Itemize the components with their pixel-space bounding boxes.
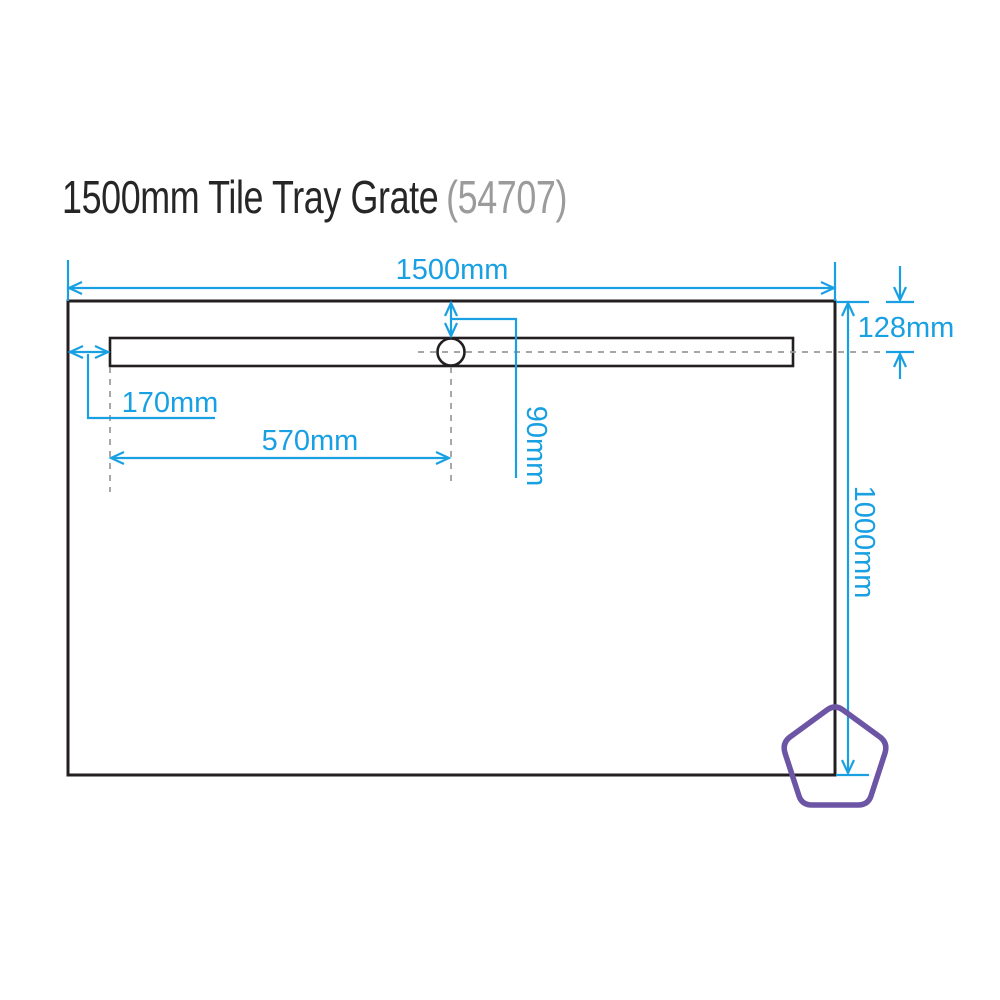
dim-grate-centre-inset: 128mm xyxy=(858,266,955,379)
drain-outlet xyxy=(438,339,465,366)
dim-tray-depth: 1000mm xyxy=(836,302,880,775)
dim-tray-width: 1500mm xyxy=(68,254,835,301)
dim-label-drain-from-slot-start: 570mm xyxy=(262,425,359,457)
dimension-diagram: 1500mm 170mm 570mm 90mm xyxy=(0,0,1000,1000)
dim-label-slot-offset: 170mm xyxy=(122,387,219,419)
dim-label-tray-width: 1500mm xyxy=(396,254,509,286)
dim-label-grate-centre-inset: 128mm xyxy=(858,312,955,344)
dim-label-drain-from-top: 90mm xyxy=(520,406,552,487)
drawing-canvas: 1500mm Tile Tray Grate(54707) 1500mm xyxy=(0,0,1000,1000)
dim-label-tray-depth: 1000mm xyxy=(848,486,880,599)
